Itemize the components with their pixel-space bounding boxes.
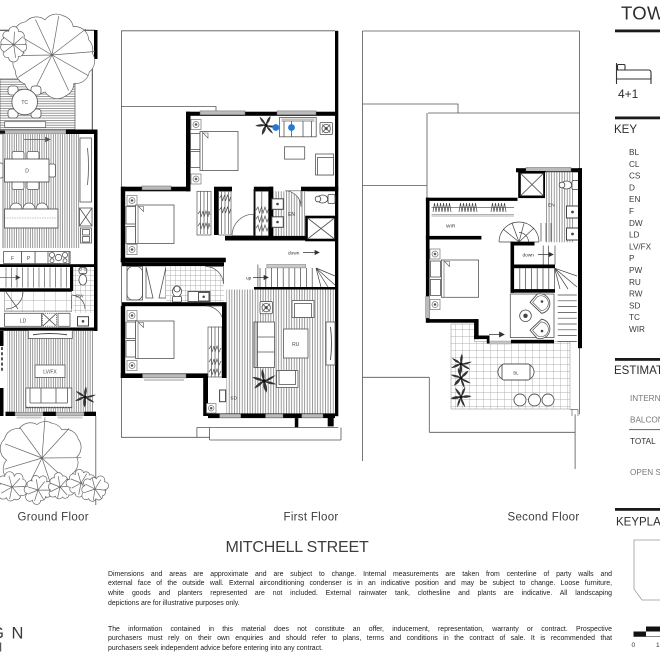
svg-text:RW: RW <box>629 290 643 299</box>
svg-text:1: 1 <box>656 642 660 649</box>
svg-text:EN: EN <box>629 195 640 204</box>
svg-text:TC: TC <box>21 100 28 106</box>
svg-text:KEY: KEY <box>614 124 637 136</box>
svg-text:up: up <box>246 277 252 282</box>
svg-text:BL: BL <box>629 148 639 157</box>
svg-text:LD: LD <box>20 319 27 325</box>
svg-text:OPEN SPACE: OPEN SPACE <box>630 468 660 477</box>
svg-text:SD: SD <box>231 396 238 401</box>
svg-text:SD: SD <box>629 301 640 310</box>
svg-text:G N: G N <box>0 625 25 643</box>
svg-text:KEYPLAN: KEYPLAN <box>616 517 660 529</box>
svg-text:CL: CL <box>629 160 640 169</box>
svg-text:RU: RU <box>629 278 641 287</box>
svg-text:down: down <box>523 253 535 259</box>
svg-text:DW: DW <box>629 219 643 228</box>
svg-text:First Floor: First Floor <box>284 512 339 524</box>
svg-text:BL: BL <box>513 370 519 375</box>
svg-text:EN: EN <box>288 212 295 218</box>
svg-text:0: 0 <box>632 642 636 649</box>
svg-text:WIR: WIR <box>629 325 645 334</box>
svg-text:F: F <box>11 256 14 262</box>
svg-text:EN: EN <box>548 203 555 209</box>
svg-text:WIR: WIR <box>446 224 456 230</box>
svg-text:Second Floor: Second Floor <box>508 512 580 524</box>
svg-text:TOTAL: TOTAL <box>630 437 656 446</box>
svg-text:RU: RU <box>292 342 300 348</box>
svg-text:down: down <box>288 251 300 257</box>
svg-text:ESTIMATED AREA: ESTIMATED AREA <box>614 365 660 377</box>
svg-text:4+1: 4+1 <box>618 87 639 101</box>
svg-text:PW: PW <box>76 294 84 299</box>
svg-text:INTERNAL: INTERNAL <box>630 394 660 403</box>
svg-text:LV/FX: LV/FX <box>43 370 57 376</box>
svg-text:TOWNHOUSE: TOWNHOUSE <box>621 3 660 24</box>
svg-text:LD: LD <box>629 231 640 240</box>
svg-text:F: F <box>629 207 634 216</box>
svg-text:Ground Floor: Ground Floor <box>18 512 89 524</box>
svg-text:P: P <box>629 254 635 263</box>
svg-text:D: D <box>25 169 29 175</box>
svg-text:D: D <box>629 183 635 192</box>
svg-text:CS: CS <box>629 172 641 181</box>
svg-text:MITCHELL STREET: MITCHELL STREET <box>225 539 369 556</box>
svg-text:LV/FX: LV/FX <box>629 242 652 251</box>
svg-text:BALCONY: BALCONY <box>630 416 660 425</box>
svg-text:TC: TC <box>629 313 640 322</box>
svg-text:PW: PW <box>629 266 642 275</box>
